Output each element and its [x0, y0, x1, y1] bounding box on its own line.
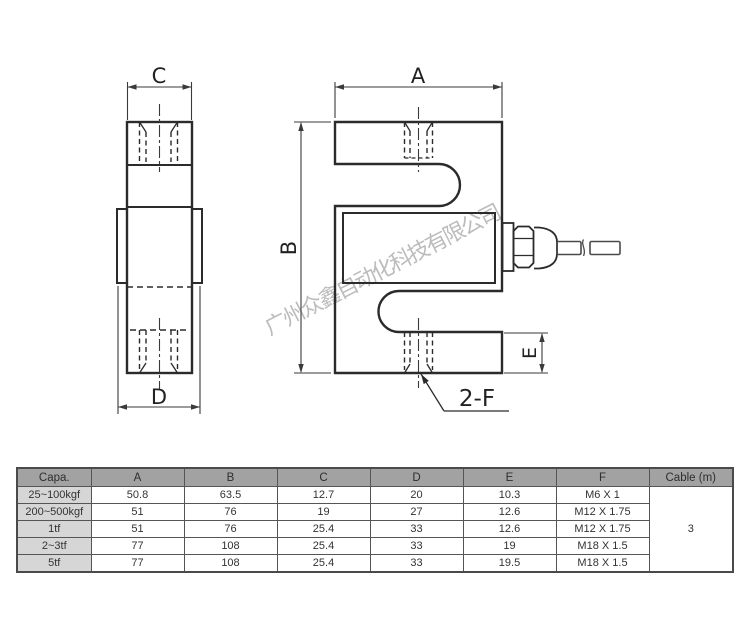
spec-cell: 19	[463, 538, 556, 555]
spec-cell: 27	[370, 504, 463, 521]
front-view	[294, 82, 548, 411]
capacity-cell: 5tf	[17, 555, 91, 573]
spec-cell: 19	[277, 504, 370, 521]
table-row: 25~100kgf 50.8 63.5 12.7 20 10.3 M6 X 1 …	[17, 487, 733, 504]
capacity-cell: 2~3tf	[17, 538, 91, 555]
spec-cell: 25.4	[277, 555, 370, 573]
spec-cell: 33	[370, 555, 463, 573]
table-row: 200~500kgf 51 76 19 27 12.6 M12 X 1.75	[17, 504, 733, 521]
cable-gland	[503, 223, 621, 271]
spec-cell: 10.3	[463, 487, 556, 504]
spec-cell: 20	[370, 487, 463, 504]
gland-flange	[503, 223, 514, 271]
cable-segment	[557, 242, 581, 255]
dim-label-d: D	[145, 385, 173, 409]
spec-cell: M12 X 1.75	[556, 504, 649, 521]
spec-cell: M18 X 1.5	[556, 555, 649, 573]
col-header-cable: Cable (m)	[649, 468, 733, 487]
dim-label-a: A	[404, 64, 432, 88]
spec-cell: 76	[184, 521, 277, 538]
spec-cell: 108	[184, 555, 277, 573]
side-view	[117, 82, 202, 414]
spec-cell: 25.4	[277, 521, 370, 538]
col-header-c: C	[277, 468, 370, 487]
dim-label-e: E	[519, 340, 541, 366]
capacity-cell: 200~500kgf	[17, 504, 91, 521]
spec-cell: M12 X 1.75	[556, 521, 649, 538]
table-row: 5tf 77 108 25.4 33 19.5 M18 X 1.5	[17, 555, 733, 573]
cable-segment	[590, 242, 620, 255]
thread-callout-label: 2-F	[446, 386, 508, 412]
header-row: Capa. A B C D E F Cable (m)	[17, 468, 733, 487]
spec-cell: 33	[370, 521, 463, 538]
spec-cell: 77	[91, 555, 184, 573]
col-header-b: B	[184, 468, 277, 487]
page: 广州众鑫自动化科技有限公司	[0, 0, 750, 626]
side-tab-left	[117, 209, 127, 283]
side-tab-right	[192, 209, 202, 283]
side-top-hole	[140, 122, 178, 162]
dim-label-c: C	[145, 64, 173, 88]
side-bottom-hole	[140, 330, 178, 373]
capacity-cell: 25~100kgf	[17, 487, 91, 504]
spec-cell: 33	[370, 538, 463, 555]
spec-table: Capa. A B C D E F Cable (m) 25~100kgf 50…	[16, 467, 734, 573]
spec-cell: M18 X 1.5	[556, 538, 649, 555]
spec-cell: 51	[91, 521, 184, 538]
col-header-capa: Capa.	[17, 468, 91, 487]
table-row: 1tf 51 76 25.4 33 12.6 M12 X 1.75	[17, 521, 733, 538]
technical-drawing	[0, 0, 750, 430]
dim-label-b: B	[277, 235, 301, 261]
spec-cell: 51	[91, 504, 184, 521]
spec-cell: 77	[91, 538, 184, 555]
spec-cell: 12.6	[463, 521, 556, 538]
spec-cell: 63.5	[184, 487, 277, 504]
spec-cell: M6 X 1	[556, 487, 649, 504]
spec-cell: 12.7	[277, 487, 370, 504]
spec-cell: 19.5	[463, 555, 556, 573]
spec-cell: 108	[184, 538, 277, 555]
cable-length-cell: 3	[649, 487, 733, 573]
gland-dome	[534, 228, 557, 269]
spec-cell: 50.8	[91, 487, 184, 504]
col-header-e: E	[463, 468, 556, 487]
col-header-d: D	[370, 468, 463, 487]
spec-cell: 76	[184, 504, 277, 521]
spec-cell: 12.6	[463, 504, 556, 521]
col-header-a: A	[91, 468, 184, 487]
cable-break	[583, 240, 585, 257]
capacity-cell: 1tf	[17, 521, 91, 538]
name-plate	[343, 213, 495, 283]
gland-hex-nut	[514, 227, 534, 268]
col-header-f: F	[556, 468, 649, 487]
spec-cell: 25.4	[277, 538, 370, 555]
table-row: 2~3tf 77 108 25.4 33 19 M18 X 1.5	[17, 538, 733, 555]
